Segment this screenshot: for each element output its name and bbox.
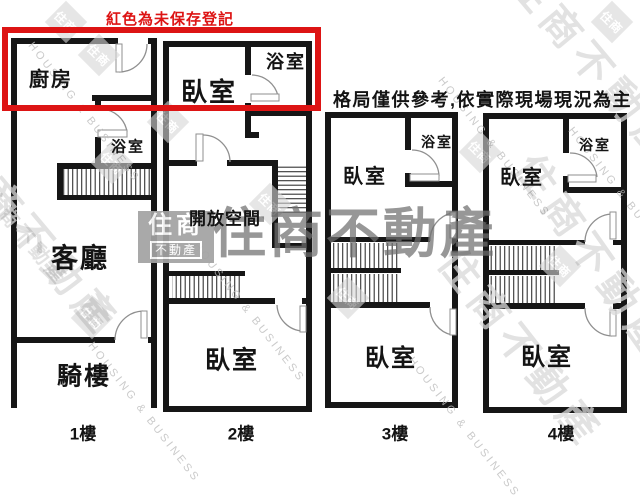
stair-treads (63, 169, 151, 195)
stair-treads (331, 243, 400, 268)
wall (325, 237, 430, 242)
room-label-bedroom-4f-top: 臥室 (500, 168, 544, 188)
wall (405, 181, 458, 187)
wall (325, 302, 430, 308)
stair-treads (278, 165, 306, 213)
floor-label-1f: 1樓 (70, 426, 96, 443)
door-arc (115, 311, 143, 340)
door-arc (203, 135, 230, 162)
room-label-bedroom-4f-bottom: 臥室 (521, 346, 573, 370)
stair-treads (489, 246, 558, 270)
stair-edge (483, 270, 559, 275)
wall (325, 112, 458, 118)
door-leaf (141, 311, 147, 338)
wall (405, 112, 411, 150)
floorplan-stage: 住商不動產 住商不動產 住商不動產 住商不動產 住商不動產 HOUSING & … (0, 0, 640, 458)
room-label-bedroom-3f-bottom: 臥室 (365, 347, 417, 371)
wall (563, 113, 569, 153)
door-leaf (196, 134, 203, 161)
stair-edge (57, 163, 157, 169)
wall (563, 187, 627, 193)
wall (483, 240, 585, 245)
door-leaf (450, 309, 456, 335)
room-label-bathroom-3f: 浴室 (421, 135, 453, 149)
door-leaf (98, 130, 127, 137)
wall (272, 160, 278, 248)
wall (163, 160, 197, 166)
room-label-bedroom-2f-bottom: 臥室 (205, 349, 259, 374)
wall (325, 402, 458, 408)
door-leaf (300, 306, 306, 332)
wall (613, 240, 627, 245)
door-arc (277, 305, 303, 331)
floor-label-3f: 3樓 (382, 426, 408, 443)
wall (325, 112, 331, 408)
wall (483, 407, 627, 413)
room-label-open-space: 開放空間 (189, 211, 261, 228)
room-label-bedroom-3f-top: 臥室 (343, 167, 387, 187)
wall (483, 113, 489, 410)
door-arc (412, 150, 439, 176)
door-arc (430, 213, 452, 241)
wall (452, 112, 458, 408)
unsaved-area-outline (2, 27, 321, 111)
stair-treads (331, 274, 400, 302)
door-leaf (568, 175, 596, 182)
wall (57, 163, 63, 200)
wall (163, 406, 312, 412)
door-leaf (450, 212, 456, 238)
wall (483, 113, 627, 119)
door-leaf (410, 174, 439, 181)
door-arc (570, 153, 597, 177)
stair-treads (489, 276, 558, 303)
room-label-bathroom-4f: 浴室 (579, 138, 611, 152)
floor-label-4f: 4樓 (548, 426, 574, 443)
stair-edge (57, 195, 157, 200)
wall (163, 298, 275, 304)
unsaved-legend-text: 紅色為未保存登記 (106, 8, 234, 29)
door-arc (101, 109, 127, 132)
wall (621, 113, 627, 410)
door-arc (430, 307, 452, 335)
wall (302, 298, 312, 304)
stair-edge (272, 243, 312, 248)
disclaimer-text: 格局僅供參考,依實際現場現況為主 (333, 86, 632, 112)
stair-edge (325, 268, 401, 273)
wall (11, 337, 115, 343)
stair-edge (169, 271, 245, 276)
room-label-living-room: 客廳 (51, 246, 109, 273)
wall (245, 132, 259, 138)
floor-label-2f: 2樓 (228, 426, 254, 443)
wall (483, 303, 585, 309)
door-leaf (610, 212, 616, 239)
wall (227, 160, 275, 166)
stair-treads (172, 276, 243, 298)
door-leaf (610, 310, 616, 336)
door-arc (585, 214, 613, 242)
wall (613, 303, 627, 309)
room-label-bathroom-1f: 浴室 (111, 140, 145, 155)
room-label-arcade: 騎樓 (57, 365, 111, 390)
wall (148, 337, 157, 343)
door-arc (585, 308, 612, 336)
